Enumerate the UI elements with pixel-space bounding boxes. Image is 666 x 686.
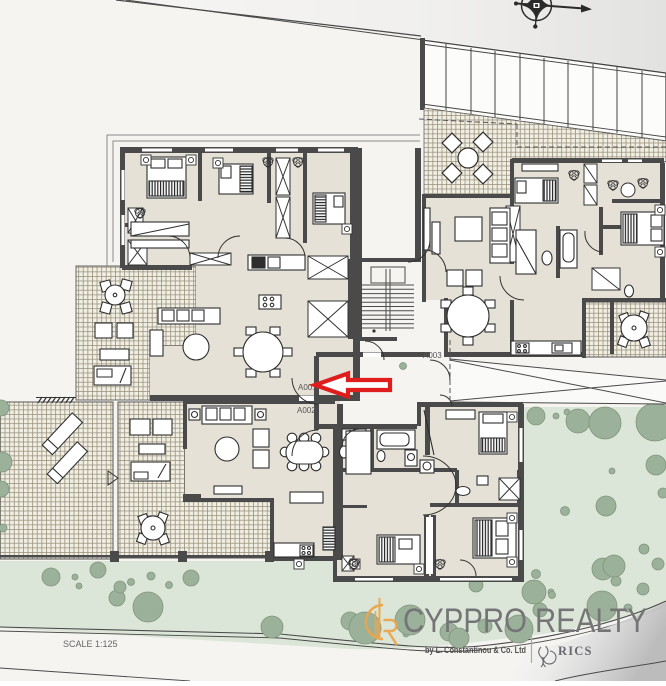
svg-text:SCALE 1:125: SCALE 1:125: [63, 639, 118, 649]
svg-text:A002: A002: [297, 406, 316, 415]
svg-text:by L. Constantinou & Co. Ltd: by L. Constantinou & Co. Ltd: [425, 645, 526, 655]
svg-text:CYPPRO REALTY: CYPPRO REALTY: [403, 602, 647, 640]
svg-text:RICS: RICS: [558, 644, 593, 658]
svg-text:A003: A003: [423, 351, 442, 360]
